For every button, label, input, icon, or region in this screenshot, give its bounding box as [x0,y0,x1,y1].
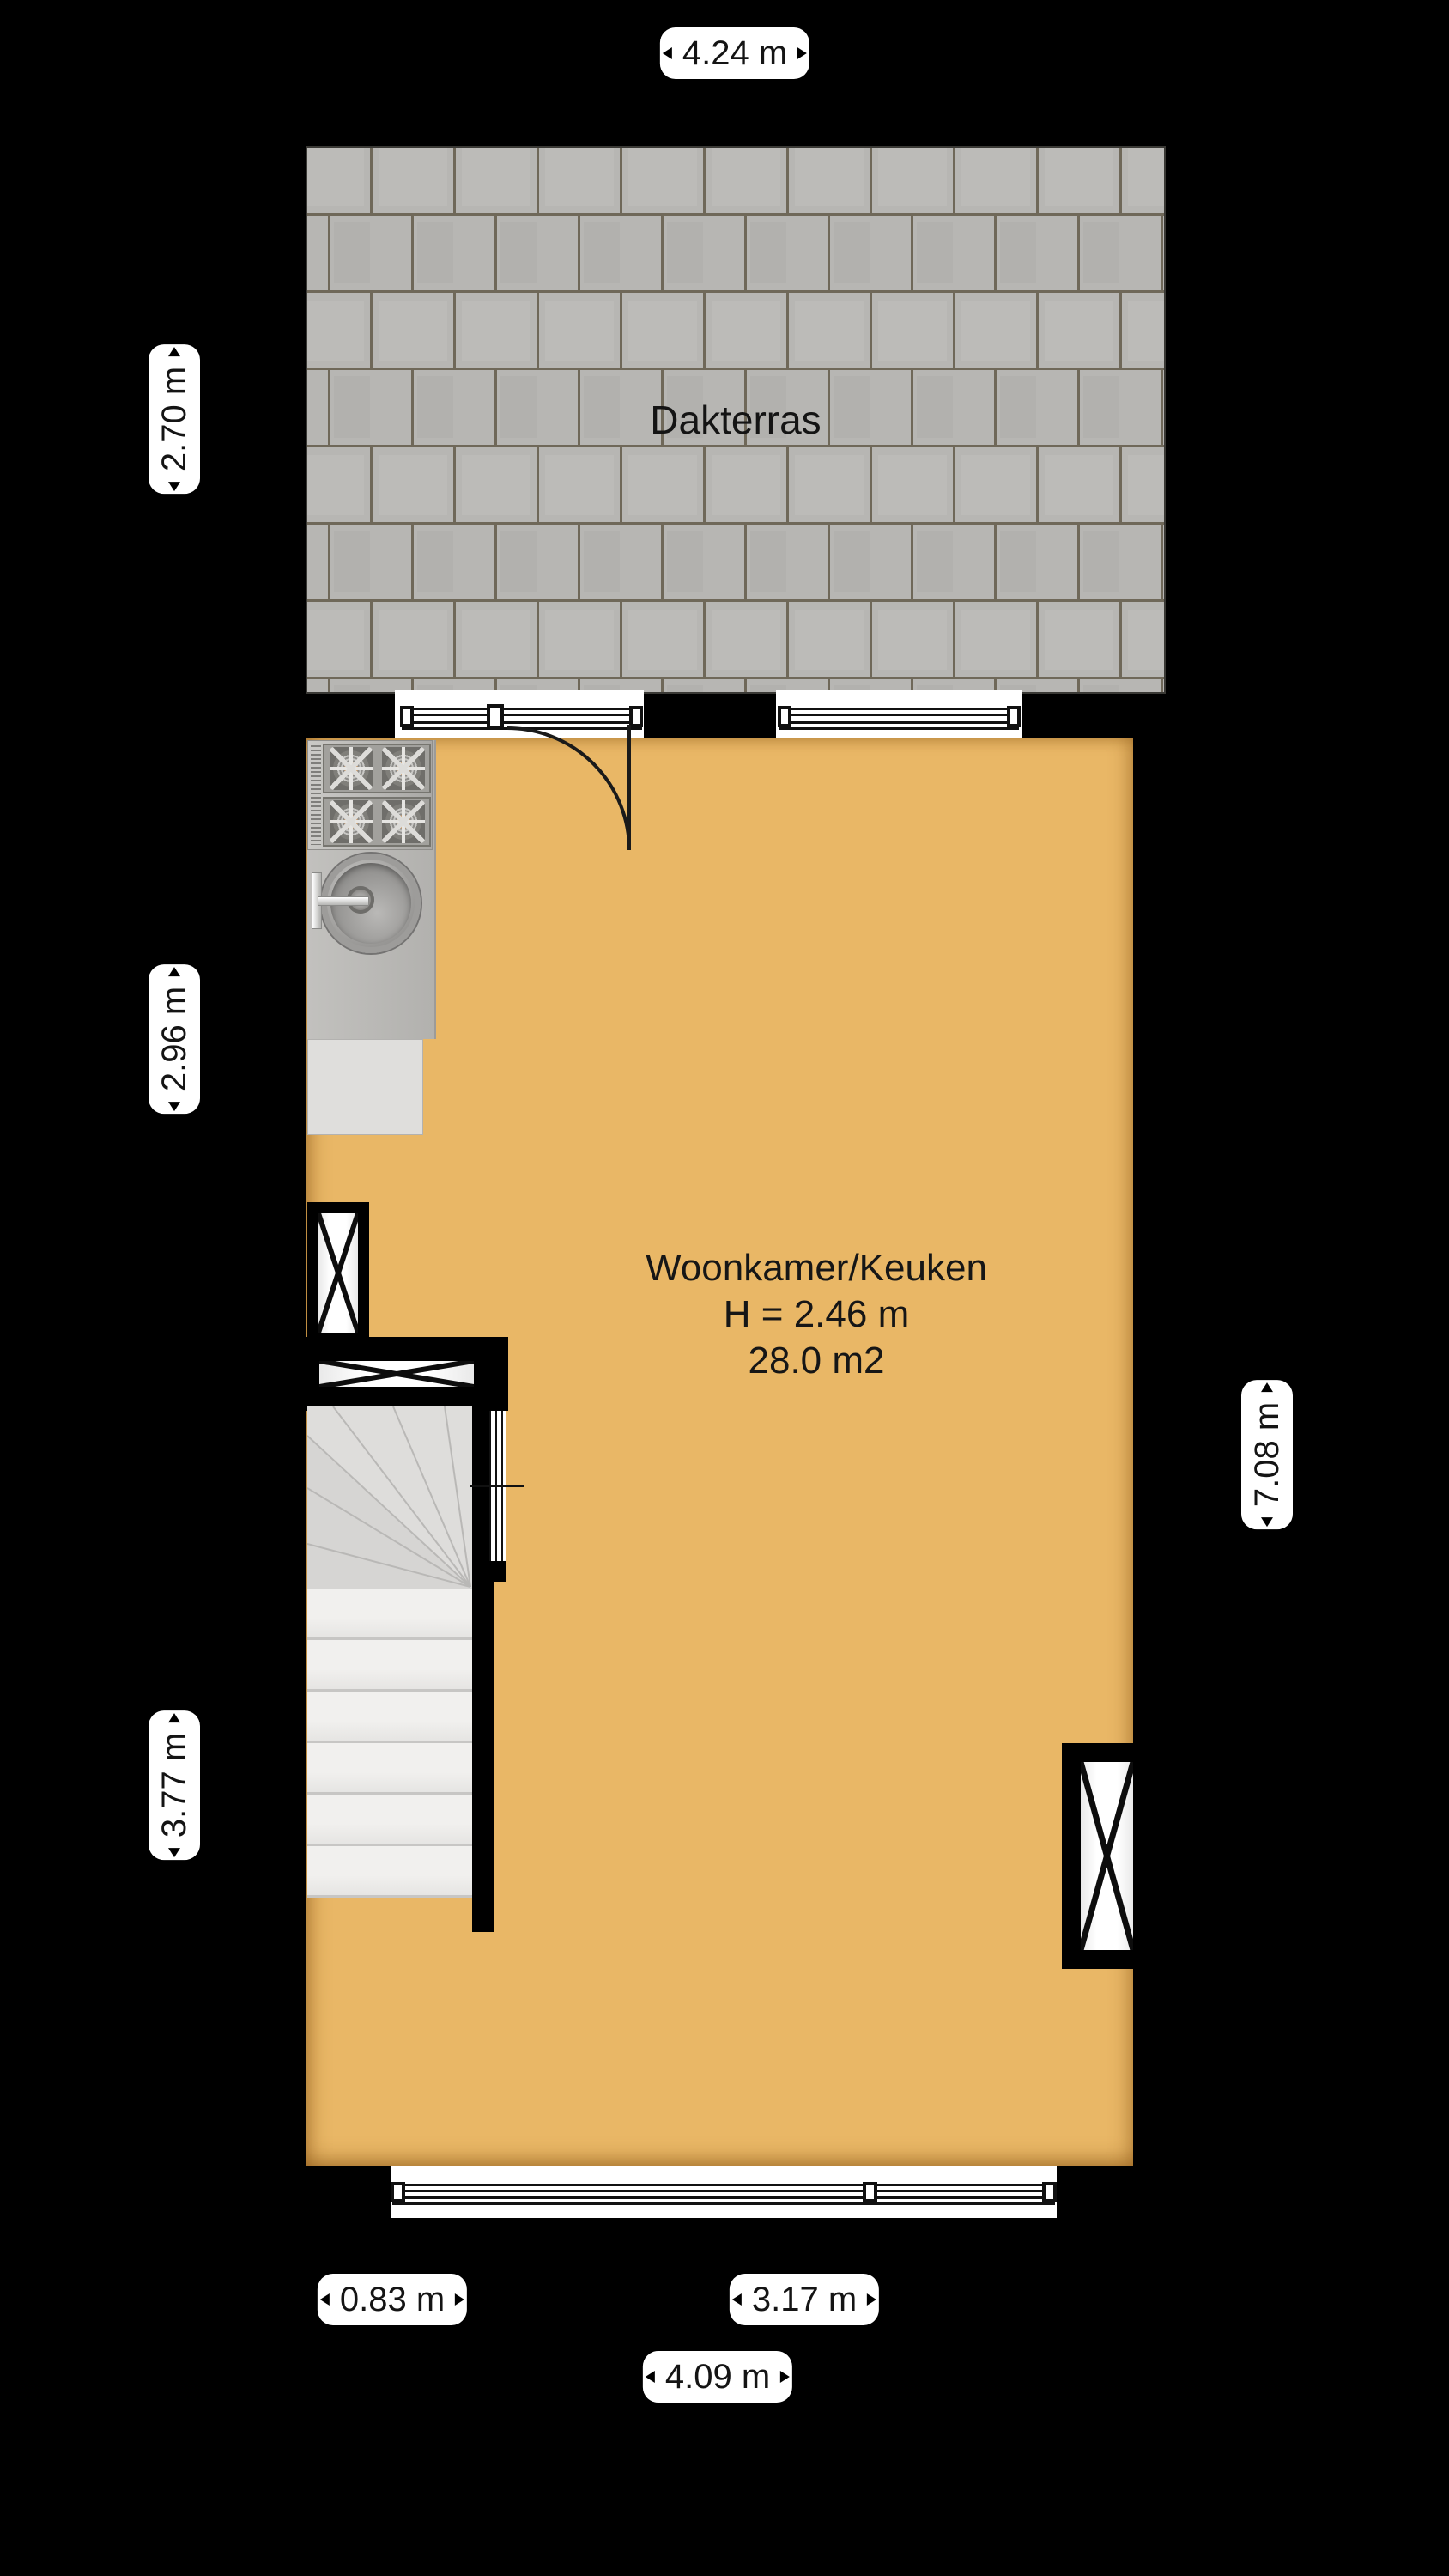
stair-door-cap [492,1561,506,1582]
dimension-label-bottom-total: 4.09 m [643,2351,792,2403]
staircase-steps [307,1589,472,1898]
stove-burner-icon [382,800,425,843]
window-post [400,706,414,727]
window-post [1042,2182,1057,2202]
stove-burner-icon [330,747,373,790]
dimension-label-kitchen-height: 2.96 m [149,964,200,1114]
front-window [391,2166,1057,2218]
room-area: 28.0 m2 [559,1338,1074,1384]
room-caption: Woonkamer/Keuken H = 2.46 m 28.0 m2 [559,1245,1074,1384]
window-glazing [392,2184,1055,2205]
window-post [391,2182,405,2202]
duct-box [307,1202,369,1344]
window-post [778,706,791,727]
dimension-label-bottom-right: 3.17 m [730,2274,879,2325]
shaft-cross-icon [318,1213,358,1333]
stair-step [307,1743,472,1795]
stove-grill-icon [311,745,321,845]
kitchen-cabinet [307,1039,423,1135]
room-height: H = 2.46 m [559,1291,1074,1338]
stove-burner-box [323,797,431,847]
dimension-label-terrace-height: 2.70 m [149,344,200,494]
dimension-label-bottom-left: 0.83 m [318,2274,467,2325]
stove-burner-box [323,744,431,793]
shaft-cross-icon [319,1361,474,1387]
stove-burner-icon [382,747,425,790]
duct-box [1062,1743,1133,1969]
stair-step [307,1589,472,1640]
duct-box [307,1355,487,1393]
stair-step [307,1692,472,1743]
shaft-cross-icon [1081,1762,1133,1950]
dimension-label-room-height: 7.08 m [1241,1380,1293,1529]
stair-step [307,1795,472,1846]
room-name: Woonkamer/Keuken [559,1245,1074,1291]
window-glazing [779,708,1019,730]
staircase-winder [307,1406,472,1589]
terrace-window [776,690,1022,741]
terrace-label: Dakterras [306,397,1166,443]
door-swing-icon [500,723,634,854]
dimension-label-top: 4.24 m [660,27,809,79]
window-post [1007,706,1021,727]
floorplan-canvas: Dakterras Woonkamer/Keuken H = 2.46 m 28… [0,0,1449,2576]
dimension-label-stairs-height: 3.77 m [149,1710,200,1860]
window-post [863,2182,877,2202]
stair-step [307,1846,472,1898]
stair-step [307,1640,472,1692]
faucet-spout [318,896,369,906]
floor-level-line [470,1485,524,1487]
stove-burner-icon [330,800,373,843]
